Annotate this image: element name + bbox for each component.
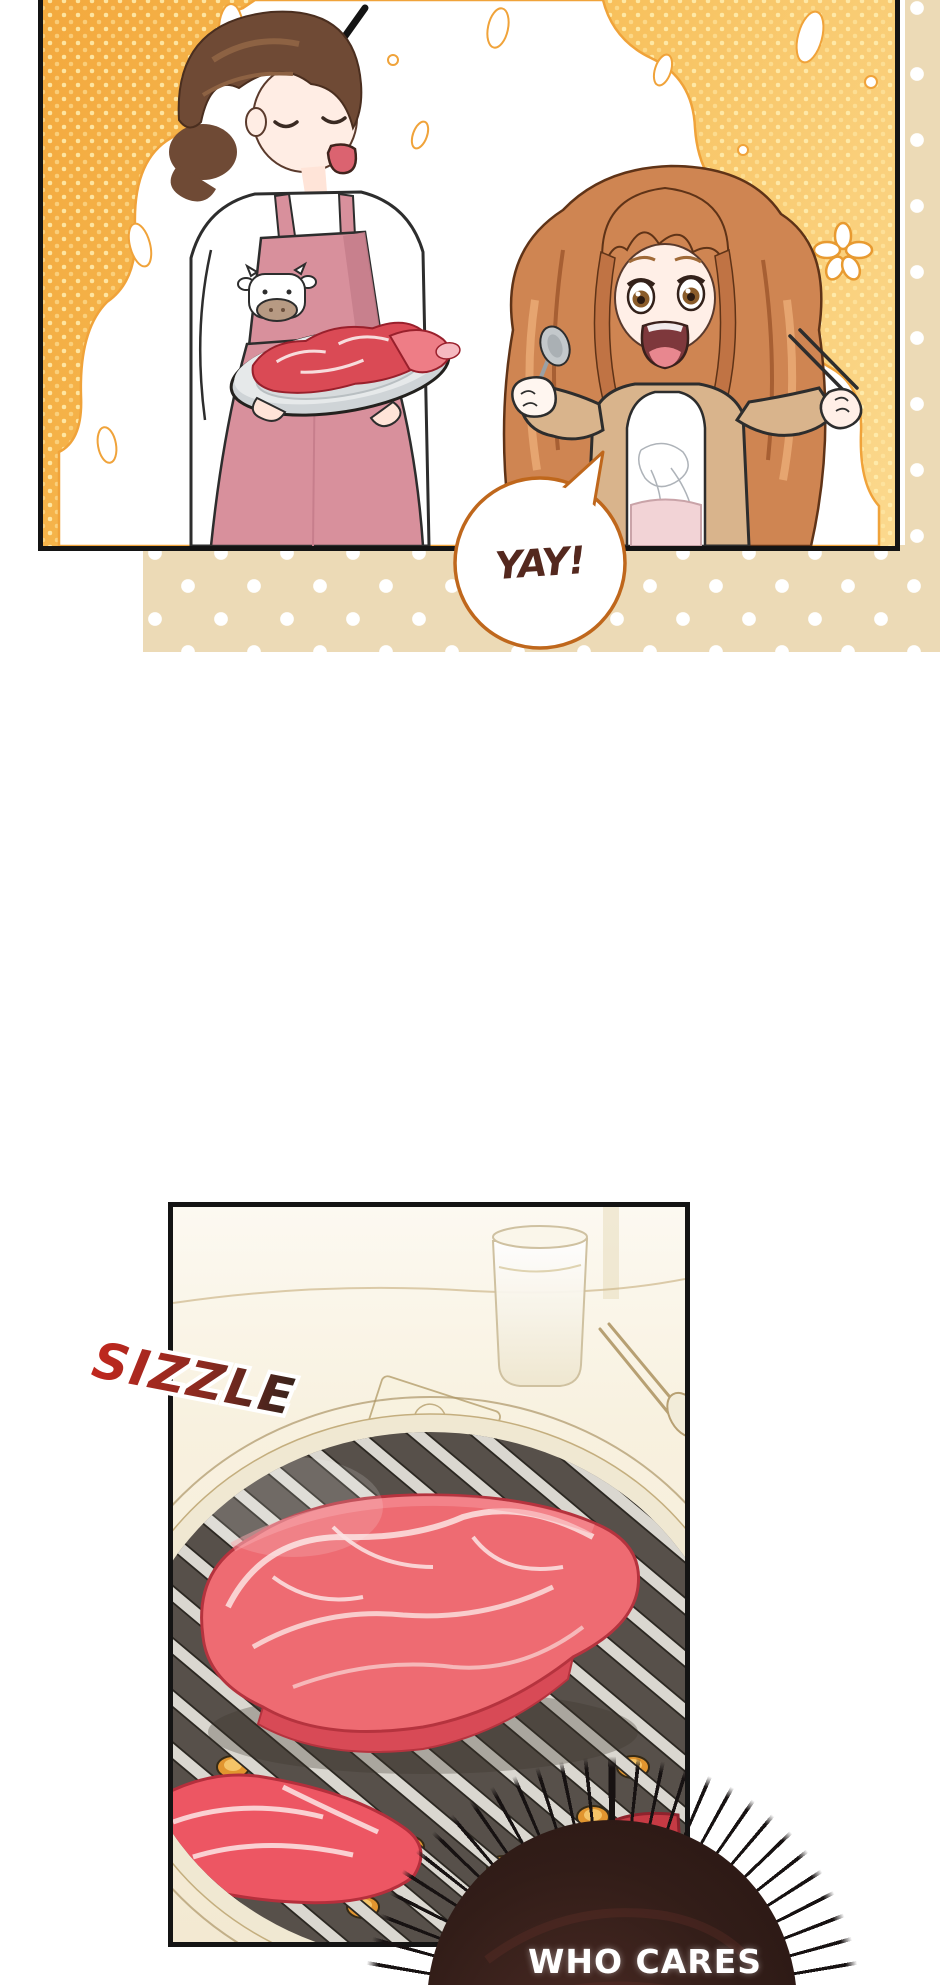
yay-text: YAY!	[494, 538, 587, 588]
speech-bubble-who-cares: WHO CARES	[427, 1820, 797, 1985]
sfx-sizzle: SIZZLE	[80, 1318, 360, 1448]
mom-mouth	[328, 145, 356, 174]
speech-bubble-yay: YAY!	[440, 435, 650, 655]
flower-doodle	[814, 223, 872, 282]
water-glass	[493, 1226, 587, 1386]
table-spoon	[660, 1387, 685, 1444]
sizzle-text: SIZZLE	[88, 1331, 300, 1427]
girl-left-fist	[512, 377, 555, 416]
who-cares-text: WHO CARES	[528, 1942, 762, 1981]
comic-page: YAY!	[0, 0, 940, 1985]
